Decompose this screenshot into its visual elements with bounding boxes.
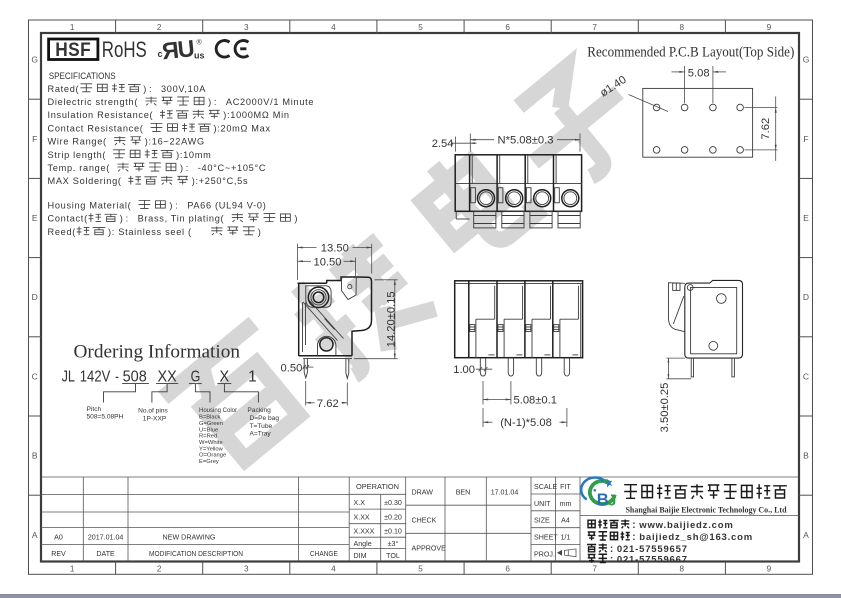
svg-text:A0: A0	[54, 534, 63, 542]
svg-text:Packing: Packing	[247, 407, 271, 414]
svg-text:): )	[120, 214, 124, 224]
svg-text:Dielectric strength(: Dielectric strength(	[48, 97, 139, 107]
svg-text:Recommended P.C.B Layout(Top S: Recommended P.C.B Layout(Top Side)	[587, 45, 794, 61]
svg-text:(N-1)*5.08: (N-1)*5.08	[500, 417, 552, 429]
svg-text:1.00: 1.00	[453, 364, 475, 376]
svg-text:):+250°C,5s: ):+250°C,5s	[192, 176, 249, 186]
svg-text:G: G	[31, 55, 38, 65]
svg-text::: :	[610, 544, 613, 555]
svg-text:6: 6	[505, 565, 510, 574]
svg-text:PROJ.: PROJ.	[534, 551, 555, 559]
svg-text:Contact Resistance(: Contact Resistance(	[48, 123, 144, 133]
svg-text:):16~22AWG: ):16~22AWG	[145, 137, 205, 147]
svg-text::: :	[214, 97, 217, 107]
svg-text:®: ®	[197, 39, 203, 47]
svg-text:142V: 142V	[80, 368, 111, 385]
svg-text:300V,10A: 300V,10A	[161, 84, 206, 94]
svg-text:X.XX: X.XX	[354, 514, 370, 522]
svg-text:): )	[294, 214, 298, 224]
svg-text:Housing Color: Housing Color	[199, 408, 237, 414]
svg-text:G: G	[803, 55, 810, 65]
svg-text:17.01.04: 17.01.04	[491, 489, 519, 497]
svg-text:G: G	[191, 368, 201, 385]
svg-text:UNIT: UNIT	[534, 500, 551, 508]
svg-text:):1000MΩ Min: ):1000MΩ Min	[223, 110, 289, 120]
svg-text::: :	[186, 163, 189, 173]
svg-text:ЯU: ЯU	[161, 35, 195, 64]
svg-text:Housing Material(: Housing Material(	[48, 200, 132, 210]
svg-text:DRAW: DRAW	[412, 489, 434, 497]
svg-text:2017.01.04: 2017.01.04	[88, 534, 124, 542]
svg-text:±0.30: ±0.30	[384, 499, 402, 507]
svg-text:1: 1	[248, 368, 257, 385]
svg-text:DIM: DIM	[354, 552, 367, 560]
svg-text:Y=Yellow: Y=Yellow	[199, 446, 224, 452]
svg-text:Pitch: Pitch	[87, 406, 102, 413]
svg-text:Insulation Resistance(: Insulation Resistance(	[48, 110, 154, 120]
svg-text:CHANGE: CHANGE	[310, 551, 338, 558]
svg-text:E: E	[803, 213, 809, 223]
svg-text:4: 4	[331, 565, 336, 574]
svg-text:13.50: 13.50	[321, 243, 349, 255]
svg-text:SHEET: SHEET	[534, 534, 558, 542]
svg-text::: :	[610, 555, 613, 566]
svg-text:SPECIFICATIONS: SPECIFICATIONS	[49, 71, 116, 82]
svg-text:): )	[143, 84, 147, 94]
svg-text:C: C	[32, 371, 38, 381]
svg-text:Shanghai Baijie Electronic Tec: Shanghai Baijie Electronic Technology Co…	[626, 506, 787, 515]
svg-text:U=Blue: U=Blue	[199, 427, 218, 433]
svg-text:±3°: ±3°	[388, 540, 399, 548]
svg-text:www.baijiedz.com: www.baijiedz.com	[638, 520, 733, 531]
svg-text:FIT: FIT	[560, 483, 571, 491]
svg-text:1P-XXP: 1P-XXP	[143, 415, 167, 422]
svg-text:Reed(: Reed(	[48, 227, 77, 237]
svg-text:): )	[208, 97, 212, 107]
svg-text:APPROVE: APPROVE	[412, 545, 447, 553]
svg-text:X.X: X.X	[354, 499, 366, 507]
svg-text:MAX Soldering(: MAX Soldering(	[48, 176, 122, 186]
svg-text:5: 5	[418, 23, 423, 32]
svg-text:OPERATION: OPERATION	[356, 484, 399, 491]
svg-text:2: 2	[157, 23, 162, 32]
svg-text:REV: REV	[51, 550, 66, 558]
svg-text:F: F	[32, 134, 37, 144]
svg-text:baijiedz_sh@163.com: baijiedz_sh@163.com	[639, 532, 753, 543]
svg-text:JL: JL	[62, 368, 76, 385]
svg-text:B=Black: B=Black	[199, 415, 221, 421]
svg-text:D: D	[32, 292, 38, 302]
svg-text:HSF: HSF	[55, 40, 91, 61]
svg-text:NEW DRAWING: NEW DRAWING	[163, 535, 216, 542]
svg-text:±0.20: ±0.20	[384, 514, 402, 522]
svg-text::: :	[632, 532, 635, 543]
svg-text:us: us	[194, 51, 205, 61]
svg-text:C: C	[803, 371, 809, 381]
svg-text:T=Tube: T=Tube	[250, 423, 273, 430]
svg-text:7.62: 7.62	[760, 118, 772, 140]
svg-text:Ordering Information: Ordering Information	[74, 342, 241, 363]
svg-text:-: -	[115, 368, 119, 385]
svg-text:3: 3	[244, 23, 249, 32]
svg-text:XX: XX	[158, 368, 178, 385]
svg-text:A: A	[803, 530, 809, 540]
svg-text:5.08±0.1: 5.08±0.1	[514, 395, 557, 407]
svg-text:Tin plating(: Tin plating(	[171, 214, 225, 224]
svg-text:Contact(: Contact(	[48, 214, 88, 224]
svg-text:D=Pe bag: D=Pe bag	[250, 415, 280, 422]
svg-text:0.50: 0.50	[281, 362, 303, 374]
svg-text:PA66 (UL94 V-0): PA66 (UL94 V-0)	[187, 200, 266, 210]
svg-text:No.of pins: No.of pins	[138, 407, 168, 414]
svg-text:A4: A4	[561, 517, 570, 525]
svg-text:1/1: 1/1	[561, 534, 571, 542]
svg-text:6: 6	[505, 23, 510, 32]
svg-text:N*5.08±0.3: N*5.08±0.3	[498, 134, 554, 146]
svg-text:J: J	[608, 493, 617, 510]
svg-text:9: 9	[767, 565, 772, 574]
svg-text:Temp. range(: Temp. range(	[48, 163, 111, 173]
svg-text:): )	[258, 227, 262, 237]
svg-text:9: 9	[767, 23, 772, 32]
svg-text:Rated(: Rated(	[48, 84, 80, 94]
svg-text:X.XXX: X.XXX	[354, 528, 375, 536]
svg-text:Brass: Brass	[138, 214, 165, 224]
svg-text:): )	[180, 163, 184, 173]
svg-text:10.50: 10.50	[314, 256, 342, 268]
svg-text:,: ,	[165, 214, 168, 224]
svg-text:A=Tray: A=Tray	[250, 430, 272, 437]
svg-text:Wire Range(: Wire Range(	[48, 137, 107, 147]
svg-text:7.62: 7.62	[317, 398, 339, 410]
svg-text:7: 7	[592, 23, 597, 32]
svg-text:D: D	[803, 292, 809, 302]
svg-text:): Stainless seel (: ): Stainless seel (	[108, 227, 192, 237]
svg-text:): )	[169, 200, 173, 210]
svg-text:SIZE: SIZE	[534, 517, 550, 525]
svg-text:E: E	[32, 213, 38, 223]
svg-text:RoHS: RoHS	[102, 37, 147, 62]
svg-text:3.50±0.25: 3.50±0.25	[659, 383, 671, 433]
svg-text:021-57559657: 021-57559657	[617, 544, 688, 555]
svg-text::: :	[632, 520, 635, 531]
svg-text:2: 2	[157, 565, 162, 574]
svg-text:X: X	[220, 368, 230, 385]
svg-text:3: 3	[244, 565, 249, 574]
svg-text:021-57559667: 021-57559667	[617, 555, 688, 566]
svg-text:mm: mm	[560, 500, 572, 508]
svg-text:Strip length(: Strip length(	[48, 150, 107, 160]
svg-text:7: 7	[592, 565, 597, 574]
svg-text:E=Grey: E=Grey	[199, 459, 219, 465]
svg-text:MODIFICATION DESCRIPTION: MODIFICATION DESCRIPTION	[149, 551, 243, 558]
svg-text:):10mm: ):10mm	[176, 150, 211, 160]
svg-text:2.54: 2.54	[432, 138, 454, 150]
svg-text:B: B	[803, 451, 809, 461]
svg-text:1: 1	[70, 565, 75, 574]
svg-text:TOL: TOL	[386, 552, 400, 560]
svg-text:8: 8	[680, 23, 685, 32]
svg-text:8: 8	[680, 565, 685, 574]
svg-text:CHECK: CHECK	[412, 517, 437, 525]
svg-text:1: 1	[70, 23, 75, 32]
svg-text::: :	[126, 214, 129, 224]
svg-text:Angle: Angle	[354, 540, 372, 548]
svg-text:508: 508	[123, 368, 147, 385]
svg-text:):20mΩ Max: ):20mΩ Max	[214, 123, 271, 133]
svg-text::: :	[149, 84, 152, 94]
svg-text:BEN: BEN	[456, 489, 471, 497]
svg-text:G=Green: G=Green	[199, 421, 223, 427]
svg-text:5.08: 5.08	[688, 67, 710, 79]
svg-text:A: A	[32, 530, 38, 540]
svg-text:AC2000V/1 Minute: AC2000V/1 Minute	[226, 97, 314, 107]
svg-text:DATE: DATE	[96, 550, 115, 558]
svg-text:SCALE: SCALE	[534, 483, 558, 491]
svg-text:W=White: W=White	[199, 440, 223, 446]
svg-text:O=Orange: O=Orange	[199, 453, 226, 459]
svg-text:B: B	[32, 451, 38, 461]
svg-text:5: 5	[418, 565, 423, 574]
svg-text:F: F	[803, 134, 808, 144]
svg-text:R=Red: R=Red	[199, 434, 217, 440]
svg-text:4: 4	[331, 23, 336, 32]
svg-text:±0.10: ±0.10	[384, 528, 402, 536]
svg-text:508=5.08PH: 508=5.08PH	[87, 413, 124, 420]
svg-text:14.20±0.15: 14.20±0.15	[386, 291, 398, 347]
svg-text:-40°C~+105°C: -40°C~+105°C	[198, 163, 266, 173]
svg-text::: :	[175, 200, 178, 210]
